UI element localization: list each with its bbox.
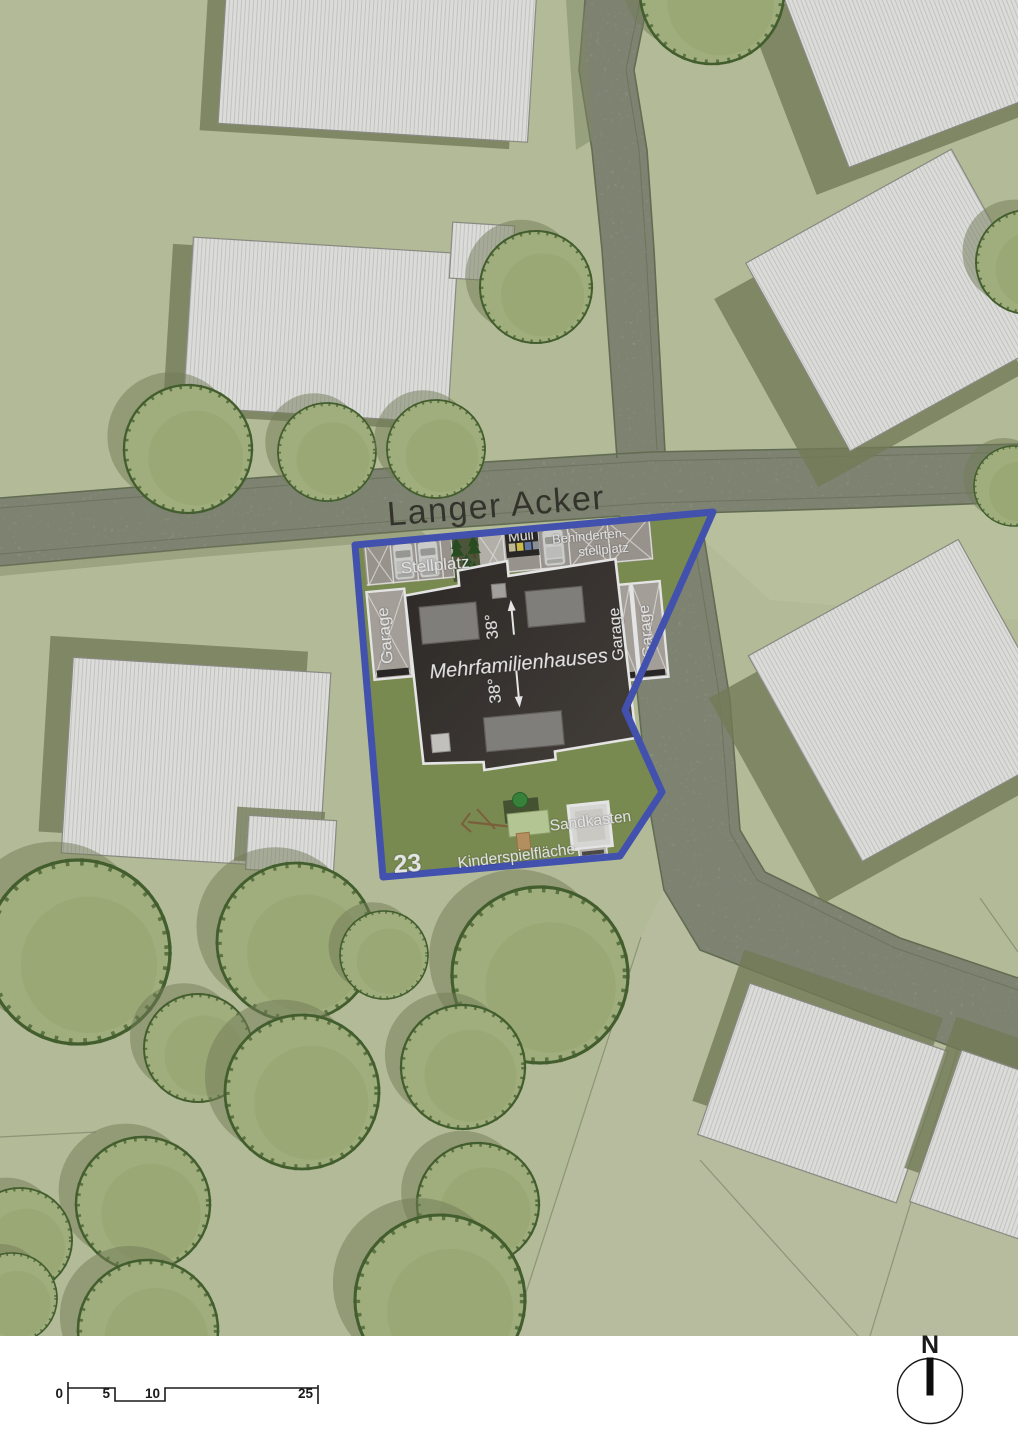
north-needle-icon <box>927 1358 934 1396</box>
scale-tick-10: 10 <box>145 1386 160 1401</box>
scale-tick-25: 25 <box>298 1386 314 1401</box>
site-plan-page: 38° Mehrfamilienhauses 38° Stellplatz Mü… <box>0 0 1018 1440</box>
scale-tick-5: 5 <box>102 1386 110 1401</box>
map-texture <box>0 0 1018 1338</box>
site-plan-map: 38° Mehrfamilienhauses 38° Stellplatz Mü… <box>0 0 1018 1440</box>
north-label: N <box>921 1331 939 1359</box>
scale-tick-0: 0 <box>55 1386 63 1401</box>
